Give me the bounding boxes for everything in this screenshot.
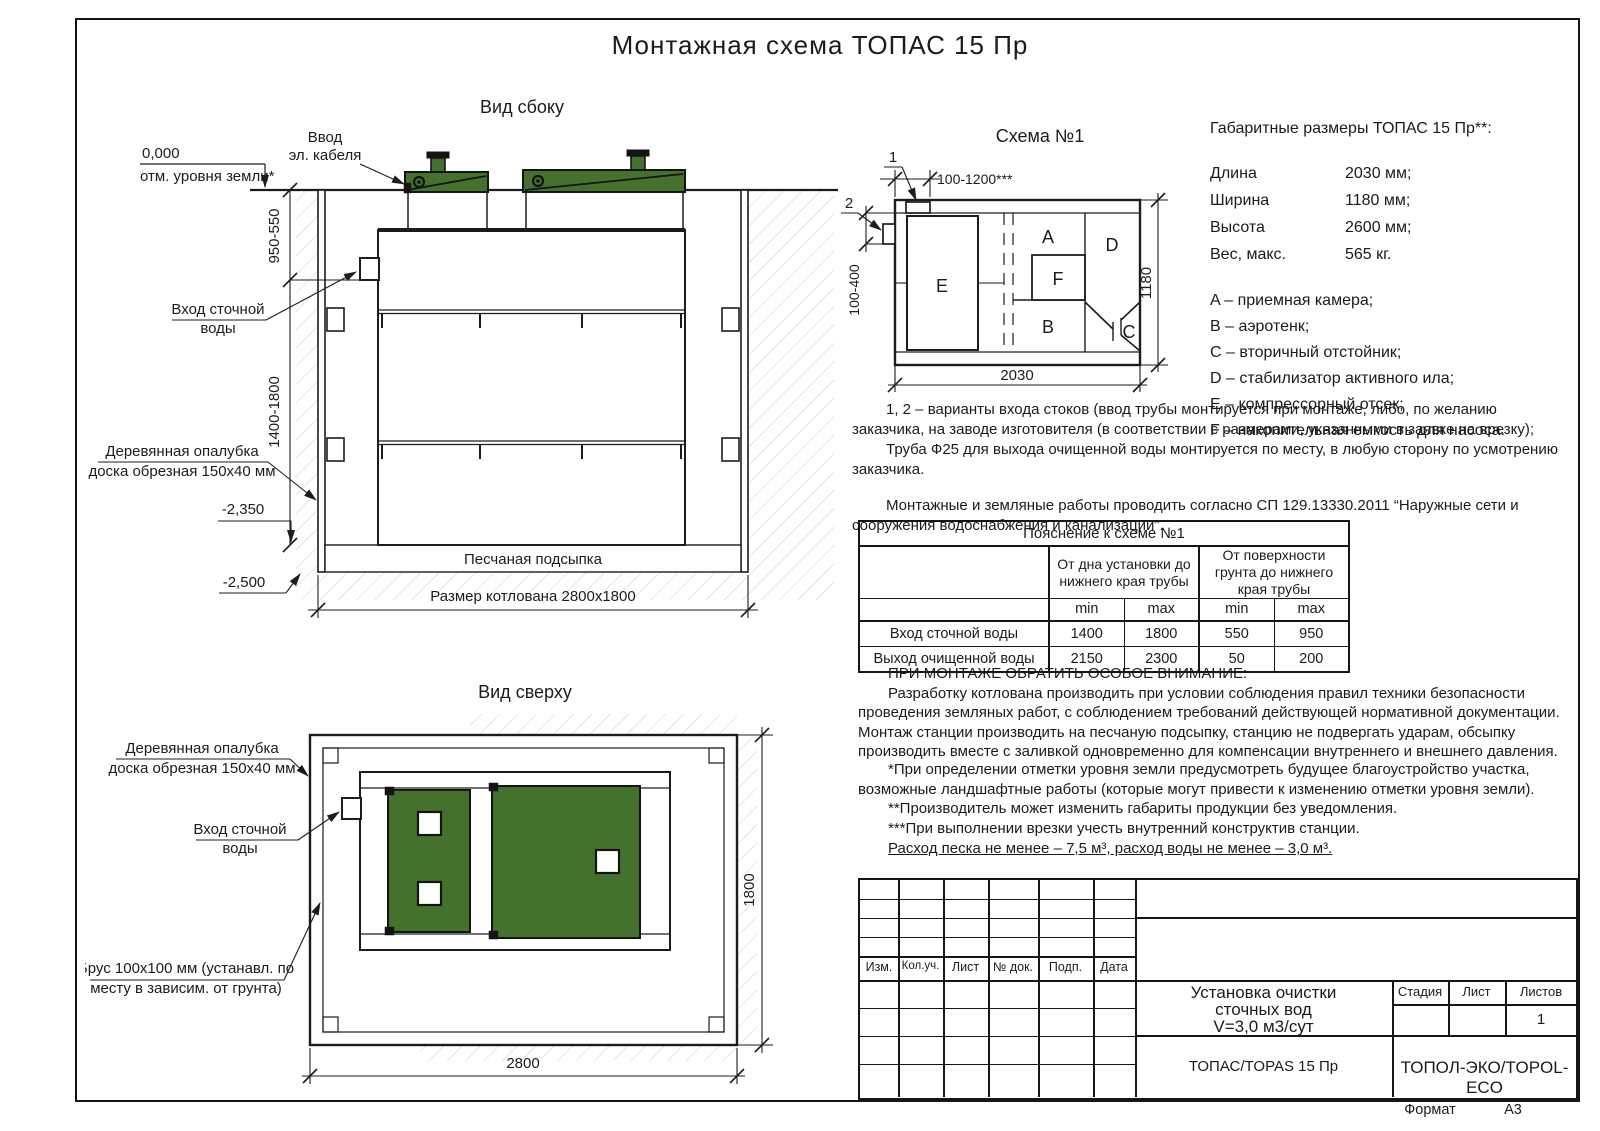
rev-header-ndok: № док. [988, 960, 1038, 974]
inlet-label-line1: Вход сточной [193, 821, 286, 838]
spec-row: Вес, макс.565 кг. [1210, 241, 1578, 268]
top-view-lids [385, 783, 640, 939]
rev-header-koluch: Кол.уч. [898, 960, 943, 972]
formwork-callout: Деревянная опалубка доска обрезная 150х4… [88, 443, 316, 500]
consumption-note: Расход песка не менее – 7,5 м³, расход в… [858, 840, 1574, 857]
beam-label-line1: Брус 100х100 мм (устанавл. по [85, 960, 294, 977]
pit-size-label: Размер котлована 2800х1800 [430, 588, 635, 605]
row-value: 550 [1199, 621, 1274, 647]
legend-item: C – вторичный отстойник; [1210, 340, 1578, 366]
rev-header-data: Дата [1093, 960, 1135, 974]
consumption-text: Расход песка не менее – 7,5 м³, расход в… [888, 840, 1332, 857]
table-max-header: max [1124, 599, 1199, 621]
footnote-2: **Производитель может изменить габариты … [858, 799, 1574, 819]
dim-1800: 1800 [741, 873, 758, 906]
table-min-header: min [1049, 599, 1124, 621]
top-view-drawing: Вид сверху Деревянная опалубка доска об [85, 675, 895, 1100]
spec-label: Вес, макс. [1210, 241, 1345, 268]
scheme-1-drawing: Схема №1 E A F B D C [835, 118, 1180, 408]
specs-block: Габаритные размеры ТОПАС 15 Пр**: Длина2… [1210, 120, 1578, 444]
spec-value: 2600 мм; [1345, 214, 1411, 241]
inlet-label-line2: воды [200, 320, 235, 337]
dim-1180: 1180 [1138, 267, 1155, 299]
level-minus-2500: -2,500 [219, 574, 300, 593]
level-2350-label: -2,350 [222, 501, 265, 518]
formwork-label-line2: доска обрезная 150х40 мм [88, 463, 275, 480]
footnote-3: ***При выполнении врезки учесть внутренн… [858, 819, 1574, 839]
row-value: 1400 [1049, 621, 1124, 647]
level-minus-2350: -2,350 [218, 501, 291, 542]
footnote-1: *При определении отметки уровня земли пр… [858, 760, 1574, 799]
page-title: Монтажная схема ТОПАС 15 Пр [500, 30, 1140, 61]
callout-1-label: 1 [889, 149, 897, 166]
legend-item: B – аэротенк; [1210, 314, 1578, 340]
model-name: ТОПАС/TOPAS 15 Пр [1135, 1058, 1392, 1075]
row-value: 1800 [1124, 621, 1199, 647]
top-formwork-callout: Деревянная опалубка доска обрезная 150х4… [108, 740, 308, 777]
top-beam-callout: Брус 100х100 мм (устанавл. по месту в за… [85, 903, 320, 997]
rev-header-list: Лист [943, 960, 988, 974]
scheme-title: Схема №1 [996, 126, 1085, 146]
dim-2800: 2800 [506, 1055, 539, 1072]
table-max-header: max [1274, 599, 1349, 621]
dim-100-1200: 100-1200*** [937, 171, 1013, 187]
compartment-a: A [1042, 227, 1054, 247]
dim-100-400: 100-400 [846, 264, 862, 316]
legend-item: D – стабилизатор активного ила; [1210, 366, 1578, 392]
table-corner-cell [859, 546, 1049, 599]
attention-title: ПРИ МОНТАЖЕ ОБРАТИТЬ ОСОБОЕ ВНИМАНИЕ: [858, 664, 1574, 684]
dim-2030: 2030 [1000, 367, 1033, 384]
inlet-label-line2: воды [222, 840, 257, 857]
rev-header-izm: Изм. [860, 960, 898, 974]
note-outlet-pipe: Труба Ф25 для выхода очищенной воды монт… [852, 440, 1568, 480]
attention-body: Разработку котлована производить при усл… [858, 684, 1574, 762]
spec-label: Высота [1210, 214, 1345, 241]
top-view-title: Вид сверху [478, 682, 572, 702]
beam-label-line2: месту в зависим. от грунта) [90, 980, 282, 997]
sheets-value: 1 [1505, 1011, 1577, 1028]
note-variants: 1, 2 – варианты входа стоков (ввод трубы… [852, 400, 1568, 440]
explanation-table: Пояснение к схеме №1 От дна установки до… [858, 520, 1350, 673]
doc-title-line2: сточных вод [1135, 1001, 1392, 1018]
table-empty-cell [859, 599, 1049, 621]
brand-name: ТОПОЛ-ЭКО/TOPOL-ECO [1392, 1058, 1577, 1098]
stage-header: Стадия [1392, 984, 1448, 999]
dim-950-550: 950-550 [266, 208, 283, 263]
table-min-header: min [1199, 599, 1274, 621]
spec-value: 1180 мм; [1345, 187, 1410, 214]
dim-1400-1800: 1400-1800 [266, 376, 283, 448]
drawing-sheet: { "colors": { "green": "#44712e", "line"… [0, 0, 1600, 1131]
side-view-drawing: Вид сбоку [85, 85, 865, 685]
compartment-b: B [1042, 317, 1054, 337]
cable-label-line1: Ввод [308, 129, 343, 146]
spec-row: Длина2030 мм; [1210, 160, 1578, 187]
doc-title: Установка очистки сточных вод V=3,0 м3/с… [1135, 984, 1392, 1035]
scheme-structure [883, 200, 1140, 365]
attention-block: ПРИ МОНТАЖЕ ОБРАТИТЬ ОСОБОЕ ВНИМАНИЕ: Ра… [858, 664, 1574, 762]
level-2500-label: -2,500 [223, 574, 266, 591]
formwork-label-line1: Деревянная опалубка [125, 740, 279, 757]
explanation-table-wrap: Пояснение к схеме №1 От дна установки до… [858, 520, 1350, 673]
row-value: 950 [1274, 621, 1349, 647]
zero-level-callout: 0,000 отм. уровня земли* [140, 145, 275, 187]
format-value: А3 [1493, 1102, 1533, 1118]
sand-label: Песчаная подсыпка [464, 551, 603, 568]
doc-title-line1: Установка очистки [1135, 984, 1392, 1001]
doc-title-line3: V=3,0 м3/сут [1135, 1018, 1392, 1035]
compartment-f: F [1053, 269, 1064, 289]
footnotes-block: *При определении отметки уровня земли пр… [858, 760, 1574, 838]
spec-row: Ширина1180 мм; [1210, 187, 1578, 214]
notes-block: 1, 2 – варианты входа стоков (ввод трубы… [852, 400, 1568, 536]
compartment-e: E [936, 276, 948, 296]
formwork-label-line1: Деревянная опалубка [105, 443, 259, 460]
spec-value: 565 кг. [1345, 241, 1391, 268]
specs-title: Габаритные размеры ТОПАС 15 Пр**: [1210, 120, 1578, 138]
ground-level-label: отм. уровня земли* [140, 168, 275, 185]
compartment-d: D [1106, 235, 1119, 255]
table-group2-header: От поверхности грунта до нижнего края тр… [1199, 546, 1349, 599]
rev-header-podp: Подп. [1038, 960, 1093, 974]
row-label: Вход сточной воды [859, 621, 1049, 647]
spec-label: Ширина [1210, 187, 1345, 214]
spec-row: Высота2600 мм; [1210, 214, 1578, 241]
zero-mark-label: 0,000 [142, 145, 180, 162]
legend-item: A – приемная камера; [1210, 288, 1578, 314]
spec-value: 2030 мм; [1345, 160, 1411, 187]
format-label: Формат [1390, 1102, 1470, 1118]
sheet-header: Лист [1448, 984, 1505, 999]
title-block: Изм. Кол.уч. Лист № док. Подп. Дата Уста… [858, 878, 1578, 1100]
side-view-title: Вид сбоку [480, 97, 564, 117]
formwork-label-line2: доска обрезная 150х40 мм [108, 760, 295, 777]
callout-2-label: 2 [845, 195, 853, 212]
sheets-header: Листов [1505, 984, 1577, 999]
side-view-lids [404, 150, 685, 193]
compartment-c: C [1123, 322, 1136, 342]
table-caption: Пояснение к схеме №1 [859, 521, 1349, 546]
table-group1-header: От дна установки до нижнего края трубы [1049, 546, 1199, 599]
spec-label: Длина [1210, 160, 1345, 187]
cable-entry-callout: Ввод эл. кабеля [289, 129, 404, 184]
table-row: Вход сточной воды 1400 1800 550 950 [859, 621, 1349, 647]
cable-label-line2: эл. кабеля [289, 147, 362, 164]
inlet-label-line1: Вход сточной [171, 301, 264, 318]
